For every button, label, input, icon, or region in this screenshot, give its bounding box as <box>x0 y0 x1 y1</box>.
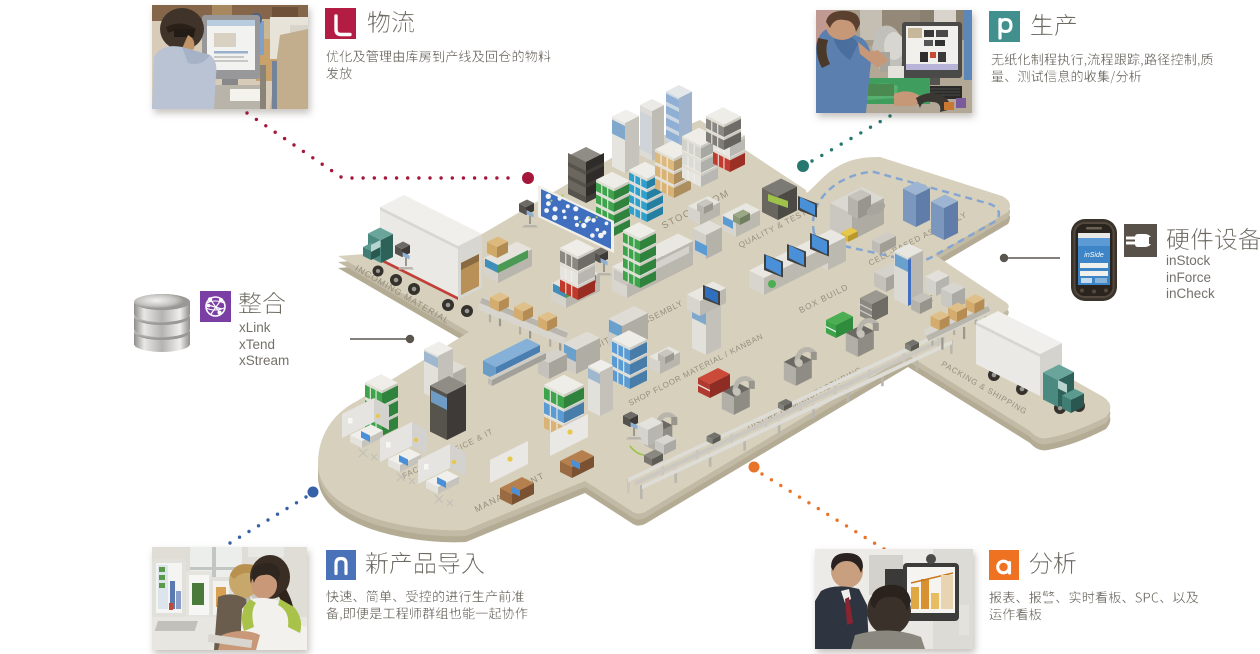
svg-text:inSide: inSide <box>1084 252 1104 259</box>
